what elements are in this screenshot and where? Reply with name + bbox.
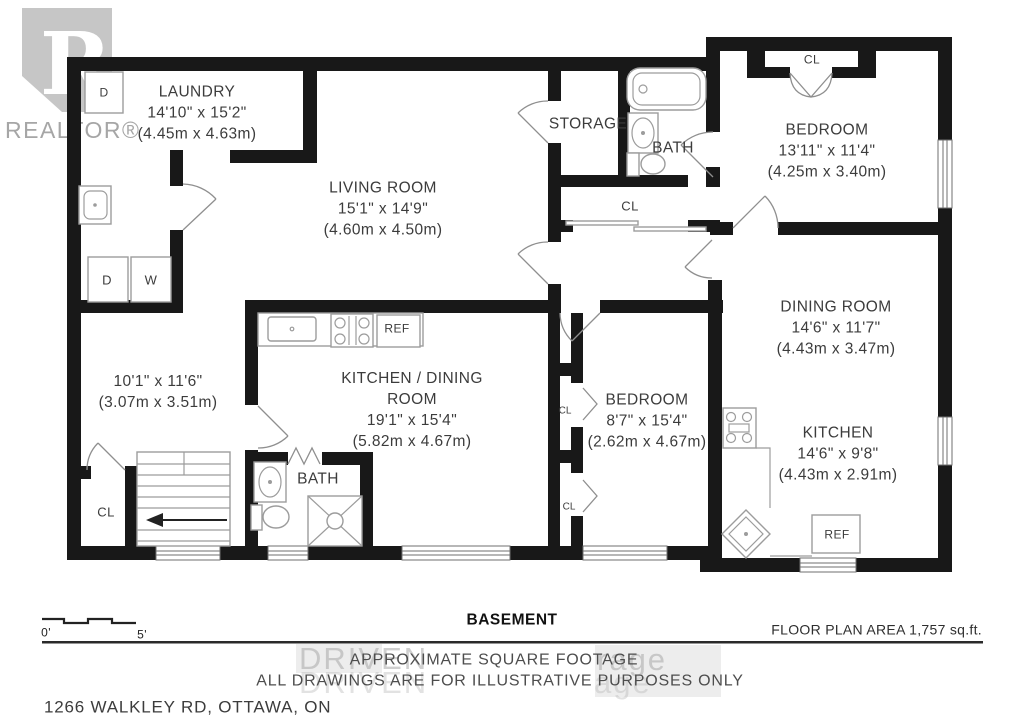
address: 1266 WALKLEY RD, OTTAWA, ON — [44, 697, 331, 718]
door-arc — [258, 406, 288, 448]
room-dims-m: (3.07m x 3.51m) — [99, 392, 218, 413]
sliding-door — [634, 227, 706, 231]
door-arc — [518, 242, 548, 284]
closet-wedge-icon — [583, 480, 597, 512]
door-arc — [183, 184, 216, 230]
dryer-label: D — [99, 83, 108, 104]
closet-double-door-icon — [790, 73, 832, 97]
closet-label: CL — [804, 50, 820, 71]
window — [938, 140, 952, 208]
shower-icon — [308, 496, 362, 546]
bedroom-ne-label: BEDROOM 13'11" x 11'4" (4.25m x 3.40m) — [768, 120, 887, 183]
window — [800, 558, 856, 572]
room-name: DINING ROOM — [777, 297, 896, 318]
room-dims-ft: 10'1" x 11'6" — [99, 371, 218, 392]
dining-room-label: DINING ROOM 14'6" x 11'7" (4.43m x 3.47m… — [777, 297, 896, 360]
room-name: LAUNDRY — [138, 82, 257, 103]
scale-start-label: 0' — [41, 623, 51, 644]
floor-plan-page: R REALTOR® — [0, 0, 1024, 723]
bathtub-icon — [627, 68, 706, 110]
disclaimer-line2: ALL DRAWINGS ARE FOR ILLUSTRATIVE PURPOS… — [256, 671, 743, 692]
window — [938, 417, 952, 465]
room-dims-m: (4.60m x 4.50m) — [324, 220, 443, 241]
room-name: ROOM — [341, 389, 483, 410]
bath-upper-label: BATH — [652, 138, 694, 159]
room-dims-m: (4.45m x 4.63m) — [138, 124, 257, 145]
room-dims-m: (2.62m x 4.67m) — [588, 432, 707, 453]
closet-label: CL — [621, 196, 638, 217]
bathroom-sink-icon — [254, 462, 286, 502]
washer-label: W — [145, 270, 158, 291]
accordion-door-icon — [288, 448, 320, 464]
door-arc — [518, 101, 548, 143]
door-arc — [87, 443, 125, 470]
footer-divider — [42, 641, 983, 644]
door-arc — [733, 196, 778, 228]
kitchen-e-label: KITCHEN 14'6" x 9'8" (4.43m x 2.91m) — [779, 423, 898, 486]
room-dims-ft: 19'1" x 15'4" — [341, 410, 483, 431]
bedroom-s-label: BEDROOM 8'7" x 15'4" (2.62m x 4.67m) — [588, 390, 707, 453]
window — [156, 546, 220, 560]
storage-label: STORAGE — [549, 114, 627, 135]
laundry-sink-icon — [79, 186, 111, 224]
room-name: BEDROOM — [768, 120, 887, 141]
room-name: BEDROOM — [588, 390, 707, 411]
room-dims-m: (5.82m x 4.67m) — [341, 431, 483, 452]
living-room-label: LIVING ROOM 15'1" x 14'9" (4.60m x 4.50m… — [324, 178, 443, 241]
window — [268, 546, 308, 560]
corner-sink-icon — [722, 510, 770, 558]
room-dims-ft: 15'1" x 14'9" — [324, 199, 443, 220]
room-dims-ft: 8'7" x 15'4" — [588, 411, 707, 432]
room-dims-ft: 13'11" x 11'4" — [768, 141, 887, 162]
sliding-door — [566, 221, 638, 225]
room-name: LIVING ROOM — [324, 178, 443, 199]
stairs — [137, 452, 230, 546]
door-arc — [685, 240, 712, 278]
closet-label: CL — [563, 497, 576, 518]
plan-name: BASEMENT — [467, 610, 558, 631]
stove-icon — [331, 314, 373, 347]
closet-label: CL — [97, 502, 114, 523]
window — [402, 546, 510, 560]
fridge-label: REF — [824, 525, 849, 546]
window — [583, 546, 667, 560]
room-dims-ft: 14'6" x 9'8" — [779, 444, 898, 465]
dryer-label: D — [102, 270, 112, 291]
bath-lower-label: BATH — [297, 469, 339, 490]
floor-plan-area: FLOOR PLAN AREA 1,757 sq.ft. — [771, 620, 982, 641]
room-dims-ft: 14'10" x 15'2" — [138, 103, 257, 124]
fridge-label: REF — [384, 319, 409, 340]
room-dims-m: (4.43m x 3.47m) — [777, 339, 896, 360]
room-name: KITCHEN / DINING — [341, 368, 483, 389]
room-dims-ft: 14'6" x 11'7" — [777, 318, 896, 339]
laundry-label: LAUNDRY 14'10" x 15'2" (4.45m x 4.63m) — [138, 82, 257, 145]
room-name: KITCHEN — [779, 423, 898, 444]
disclaimer-line1: APPROXIMATE SQUARE FOOTAGE — [350, 650, 639, 671]
kitchen-sink-icon — [268, 317, 316, 341]
room-dims-m: (4.43m x 2.91m) — [779, 465, 898, 486]
closet-label: CL — [559, 401, 572, 422]
scale-bar-icon — [42, 619, 136, 623]
kitchen-dining-label: KITCHEN / DINING ROOM 19'1" x 15'4" (5.8… — [341, 368, 483, 452]
scale-end-label: 5' — [137, 625, 147, 646]
stove-icon — [723, 408, 756, 448]
room-sw-label: 10'1" x 11'6" (3.07m x 3.51m) — [99, 371, 218, 413]
room-dims-m: (4.25m x 3.40m) — [768, 162, 887, 183]
toilet-icon — [251, 505, 289, 530]
